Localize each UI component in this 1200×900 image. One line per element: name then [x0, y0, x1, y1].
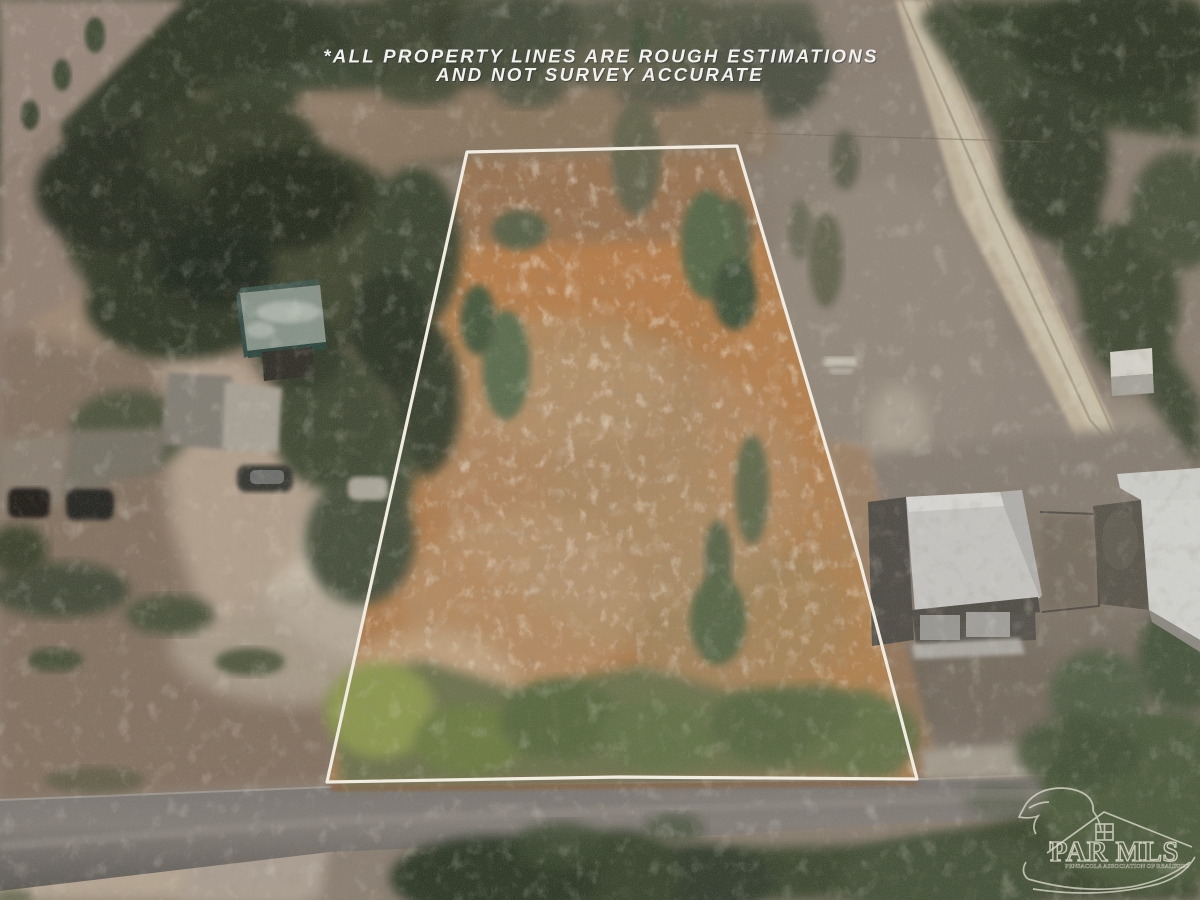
svg-text:AND NOT SURVEY ACCURATE: AND NOT SURVEY ACCURATE [435, 64, 764, 85]
svg-text:PENSACOLA ASSOCIATION OF REALT: PENSACOLA ASSOCIATION OF REALTORS [1065, 864, 1190, 870]
